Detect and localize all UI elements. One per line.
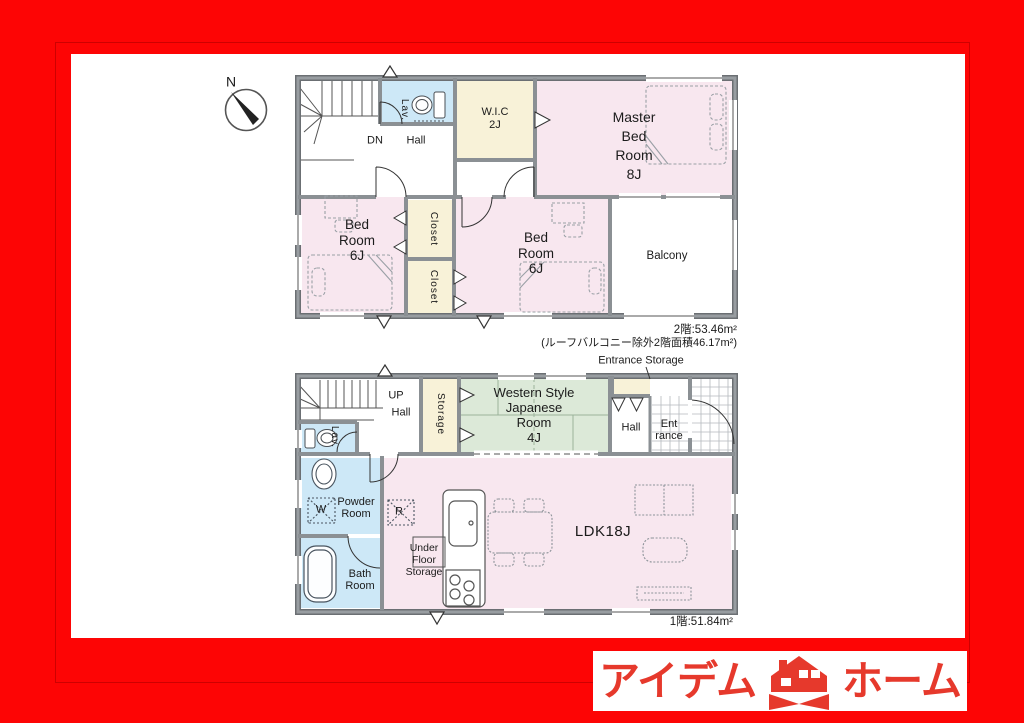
floor1-bath-room-label: Bath Room — [345, 568, 374, 592]
floor2-hall-label: Hall — [407, 135, 426, 148]
red-frame: N — [0, 0, 1024, 723]
floor1-under-floor-storage-label: Under Floor Storage — [406, 542, 443, 578]
floor1-entrance-label: Ent rance — [655, 418, 683, 442]
floor1-refrigerator-label: R — [395, 506, 403, 519]
bathtub-icon — [304, 546, 336, 602]
floor2-balcony-label: Balcony — [647, 250, 688, 264]
floor1-storage-label: Storage — [434, 393, 446, 435]
floor1-hall-left-label: Hall — [392, 407, 411, 420]
floor2-bedroom-center-label: Bed Room 6J — [518, 230, 554, 277]
floor2-plan — [294, 60, 740, 336]
brand-logo: アイデム ホーム — [593, 651, 967, 711]
floor2-dn-label: DN — [367, 135, 383, 148]
floor2-closet-top-label: Closet — [427, 212, 439, 246]
floor1-japanese-room-label: Western Style Japanese Room 4J — [494, 385, 575, 445]
floor2-wic-label: W.I.C 2J — [482, 106, 509, 132]
compass-north-label: N — [226, 74, 236, 91]
floor1-ldk-label: LDK18J — [575, 523, 631, 541]
kitchen-counter — [443, 490, 485, 607]
floor1-powder-room-label: Powder Room — [337, 496, 374, 520]
floor2-master-bedroom-label: Master Bed Room 8J — [613, 108, 656, 184]
floor1-lav-label: Lav. — [328, 426, 340, 448]
floor1-up-label: UP — [388, 390, 403, 403]
floor1-hall-right-label: Hall — [622, 422, 641, 435]
floor1-washer-label: W — [316, 504, 326, 517]
brand-text-left: アイデム — [599, 661, 756, 702]
floor2-area-note: (ルーフバルコニー除外2階面積46.17m²) — [541, 334, 737, 350]
floor1-area-text: 1階:51.84m² — [670, 613, 733, 629]
brand-text-right: ホーム — [842, 661, 961, 702]
floor2-lav-label: Lav. — [398, 99, 410, 121]
brand-house-icon — [760, 652, 838, 710]
floor1-entrance-storage-label: Entrance Storage — [598, 355, 684, 368]
floor2-bedroom-left-label: Bed Room 6J — [339, 217, 375, 264]
floor2-closet-bottom-label: Closet — [427, 270, 439, 304]
